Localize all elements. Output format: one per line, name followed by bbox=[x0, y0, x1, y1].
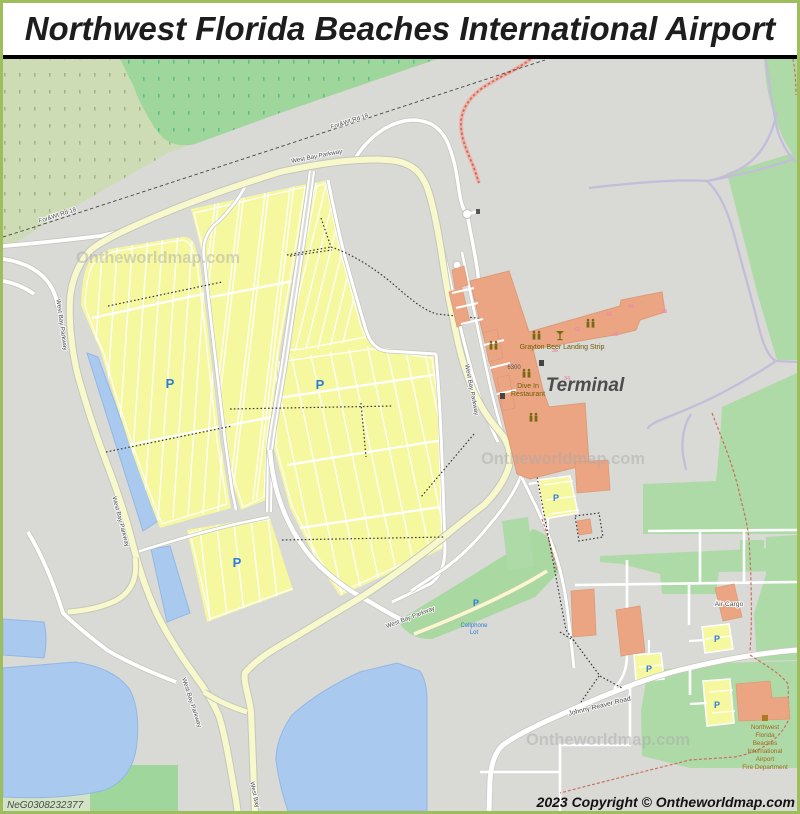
svg-text:P: P bbox=[714, 700, 720, 710]
svg-text:2023 Copyright © Ontheworldmap: 2023 Copyright © Ontheworldmap.com bbox=[536, 794, 795, 810]
svg-text:P: P bbox=[473, 598, 479, 608]
svg-text:Ontheworldmap.com: Ontheworldmap.com bbox=[481, 450, 645, 468]
svg-text:Beaches: Beaches bbox=[753, 740, 778, 747]
svg-text:Northwest: Northwest bbox=[751, 724, 780, 731]
svg-text:P: P bbox=[553, 493, 559, 503]
svg-text:6300: 6300 bbox=[507, 365, 521, 371]
svg-text:Florida: Florida bbox=[755, 732, 775, 739]
svg-text:42: 42 bbox=[606, 312, 612, 318]
svg-text:Ontheworldmap.com: Ontheworldmap.com bbox=[526, 731, 690, 749]
svg-text:P: P bbox=[233, 555, 242, 570]
svg-text:International: International bbox=[748, 748, 783, 755]
svg-text:Grayton Beer Landing Strip: Grayton Beer Landing Strip bbox=[520, 344, 605, 351]
svg-text:45: 45 bbox=[612, 332, 618, 338]
svg-text:44: 44 bbox=[628, 304, 635, 310]
svg-text:Lot: Lot bbox=[470, 630, 479, 636]
svg-text:NeG0308232377: NeG0308232377 bbox=[7, 800, 84, 811]
svg-text:Airport: Airport bbox=[756, 756, 775, 763]
svg-text:35: 35 bbox=[661, 309, 667, 315]
svg-text:Restaurant: Restaurant bbox=[511, 391, 545, 398]
svg-text:Terminal: Terminal bbox=[546, 375, 625, 396]
svg-text:Air Cargo: Air Cargo bbox=[715, 601, 744, 608]
svg-text:Cellphone: Cellphone bbox=[460, 623, 488, 629]
svg-text:P: P bbox=[646, 664, 652, 674]
svg-text:Dive In: Dive In bbox=[517, 383, 539, 390]
svg-text:P: P bbox=[166, 376, 175, 391]
svg-text:Ontheworldmap.com: Ontheworldmap.com bbox=[76, 249, 240, 267]
svg-text:P: P bbox=[714, 634, 720, 644]
svg-text:Fire Department: Fire Department bbox=[742, 764, 788, 771]
svg-text:41: 41 bbox=[574, 327, 580, 333]
svg-text:P: P bbox=[316, 377, 325, 392]
